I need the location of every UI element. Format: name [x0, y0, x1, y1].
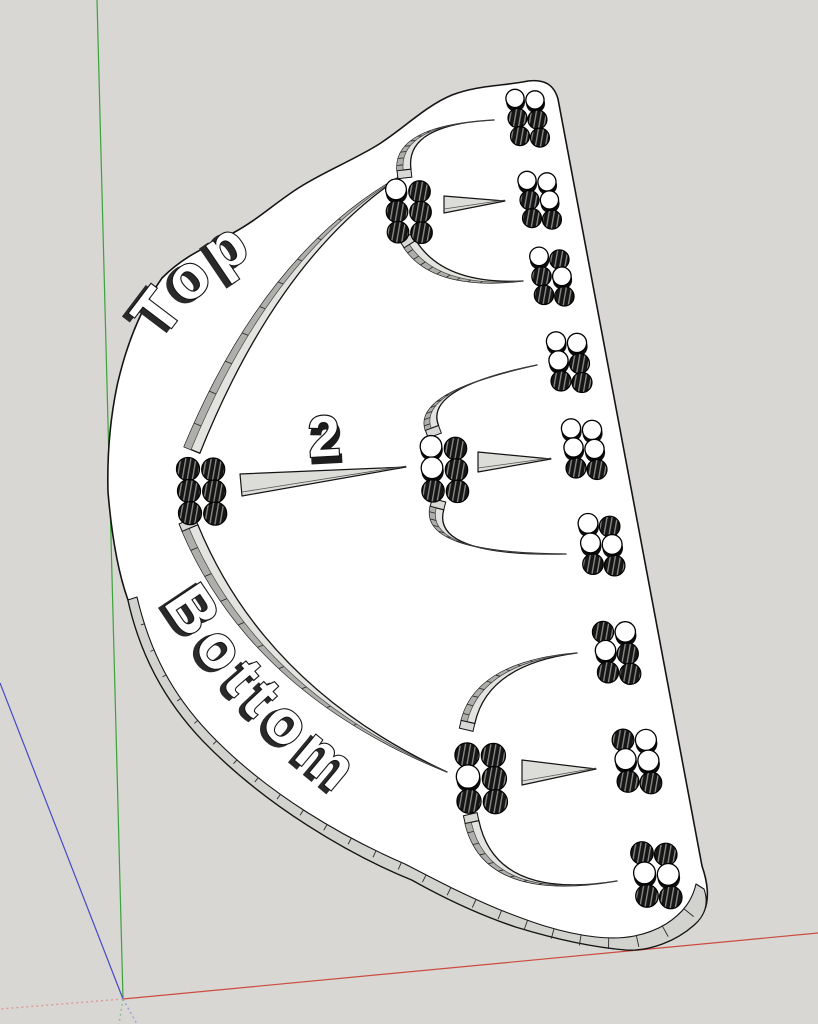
segment-number: 2 [306, 403, 342, 470]
peg-cluster-leaf-4 [546, 332, 592, 393]
segment-number-group: 2 2 [306, 403, 344, 476]
model-canvas[interactable]: Top Top Bottom Bottom 2 2 [0, 0, 818, 1024]
red-axis-line [123, 933, 818, 999]
sketchup-viewport[interactable]: Top Top Bottom Bottom 2 2 [0, 0, 818, 1024]
red-axis-dotted-line [0, 999, 123, 1009]
blue-axis-dotted-line [123, 999, 137, 1024]
peg-cluster-leaf-7 [592, 621, 640, 684]
green-axis-dotted-line [119, 999, 123, 1024]
blue-axis-line [0, 683, 123, 999]
half-round-board-model: Top Top Bottom Bottom 2 2 [108, 81, 708, 950]
peg-cluster-leaf-1 [506, 89, 550, 147]
